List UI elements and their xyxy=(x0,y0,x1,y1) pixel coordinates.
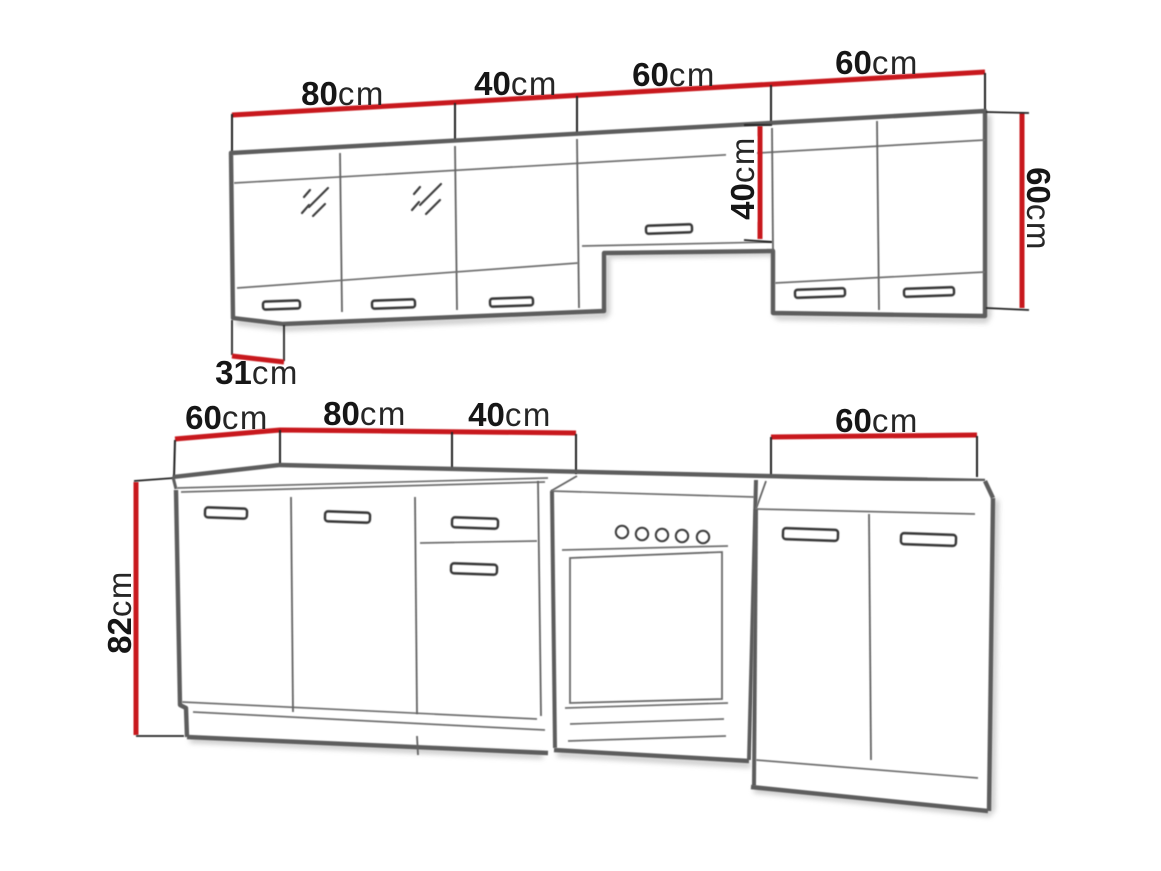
svg-text:60cm: 60cm xyxy=(185,399,269,436)
svg-text:80cm: 80cm xyxy=(301,75,385,112)
svg-text:31cm: 31cm xyxy=(215,354,299,391)
svg-text:80cm: 80cm xyxy=(323,395,407,432)
svg-text:40cm: 40cm xyxy=(474,65,558,102)
svg-text:82cm: 82cm xyxy=(101,570,138,654)
svg-text:60cm: 60cm xyxy=(835,402,919,439)
svg-text:40cm: 40cm xyxy=(724,136,761,220)
svg-text:60cm: 60cm xyxy=(835,44,919,81)
svg-text:40cm: 40cm xyxy=(468,396,552,433)
svg-text:60cm: 60cm xyxy=(632,56,716,93)
svg-text:60cm: 60cm xyxy=(1020,167,1057,251)
